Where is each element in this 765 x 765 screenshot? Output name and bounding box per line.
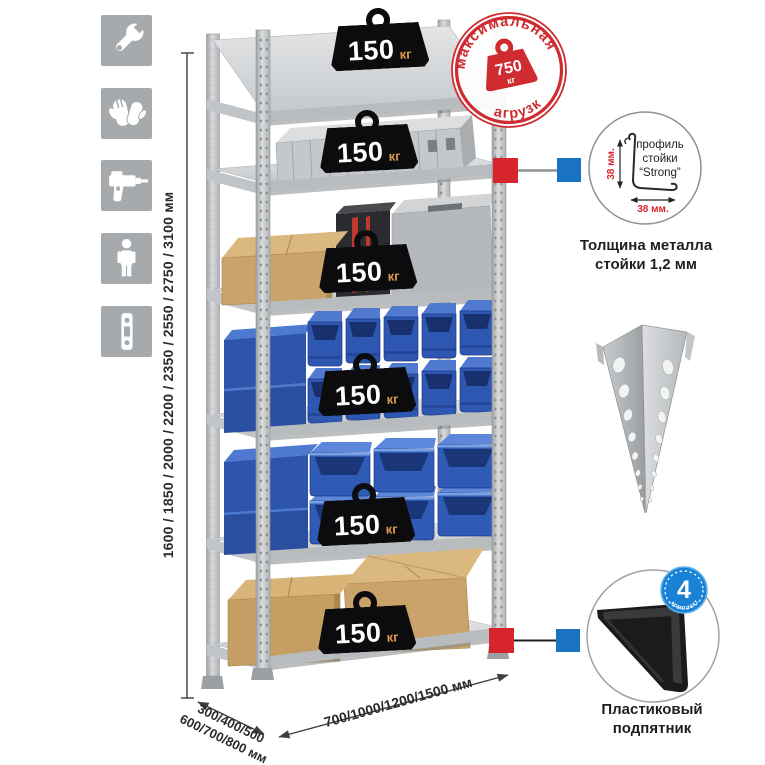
load-value: 150: [347, 36, 395, 65]
shelf-load-badge-2: 150кг: [316, 107, 419, 173]
red-marker-square: [493, 158, 518, 183]
load-value: 150: [335, 258, 383, 287]
callout-connector-bottom: [489, 628, 580, 653]
load-unit: кг: [385, 522, 398, 536]
height-dimension-label: 1600 / 1850 / 2000 / 2200 / 2350 / 2550 …: [160, 190, 176, 560]
shelf-load-badge-4: 150кг: [314, 350, 417, 416]
load-value: 150: [334, 619, 382, 648]
load-unit: кг: [388, 149, 401, 163]
product-infographic: 150кг 150кг 150кг 150кг 150кг 150кг макс…: [0, 0, 765, 765]
load-unit: кг: [386, 392, 399, 406]
red-marker-square: [489, 628, 514, 653]
profile-caption: Толщина металла стойки 1,2 мм: [568, 237, 724, 275]
blue-crates-large: [224, 444, 318, 555]
blue-marker-square: [557, 158, 581, 182]
shelf-load-badge-6: 150кг: [314, 588, 417, 654]
angle-post-image: [588, 303, 748, 531]
svg-text:“Strong”: “Strong”: [639, 167, 681, 179]
load-unit: кг: [399, 47, 412, 61]
max-load-stamp: максимальная нагрузка 750 кг: [443, 6, 575, 134]
profile-label: профиль стойки “Strong”: [636, 139, 684, 179]
svg-text:стойки: стойки: [642, 153, 677, 165]
load-value: 150: [333, 511, 381, 540]
post-profile-detail: 38 мм. 38 мм. профиль стойки “Strong”: [583, 108, 708, 233]
load-value: 150: [336, 138, 384, 167]
shelf-load-badge-5: 150кг: [313, 480, 416, 546]
shelf-load-badge-3: 150кг: [315, 227, 418, 293]
foot-caption: Пластиковый подпятник: [574, 701, 730, 739]
height-dimension-line: [181, 53, 194, 698]
profile-horizontal-dim-label: 38 мм.: [637, 204, 669, 215]
count-value: 4: [677, 576, 691, 604]
svg-text:профиль: профиль: [636, 139, 684, 151]
shelf-load-badge-1: 150кг: [327, 5, 430, 71]
load-value: 150: [334, 381, 382, 410]
load-unit: кг: [386, 630, 399, 644]
callout-connector-top: [493, 158, 581, 183]
profile-vertical-dim-label: 38 мм.: [606, 148, 617, 180]
blue-marker-square: [556, 629, 580, 652]
plastic-foot-detail: 4 в комплекте: [585, 560, 735, 715]
load-unit: кг: [387, 269, 400, 283]
